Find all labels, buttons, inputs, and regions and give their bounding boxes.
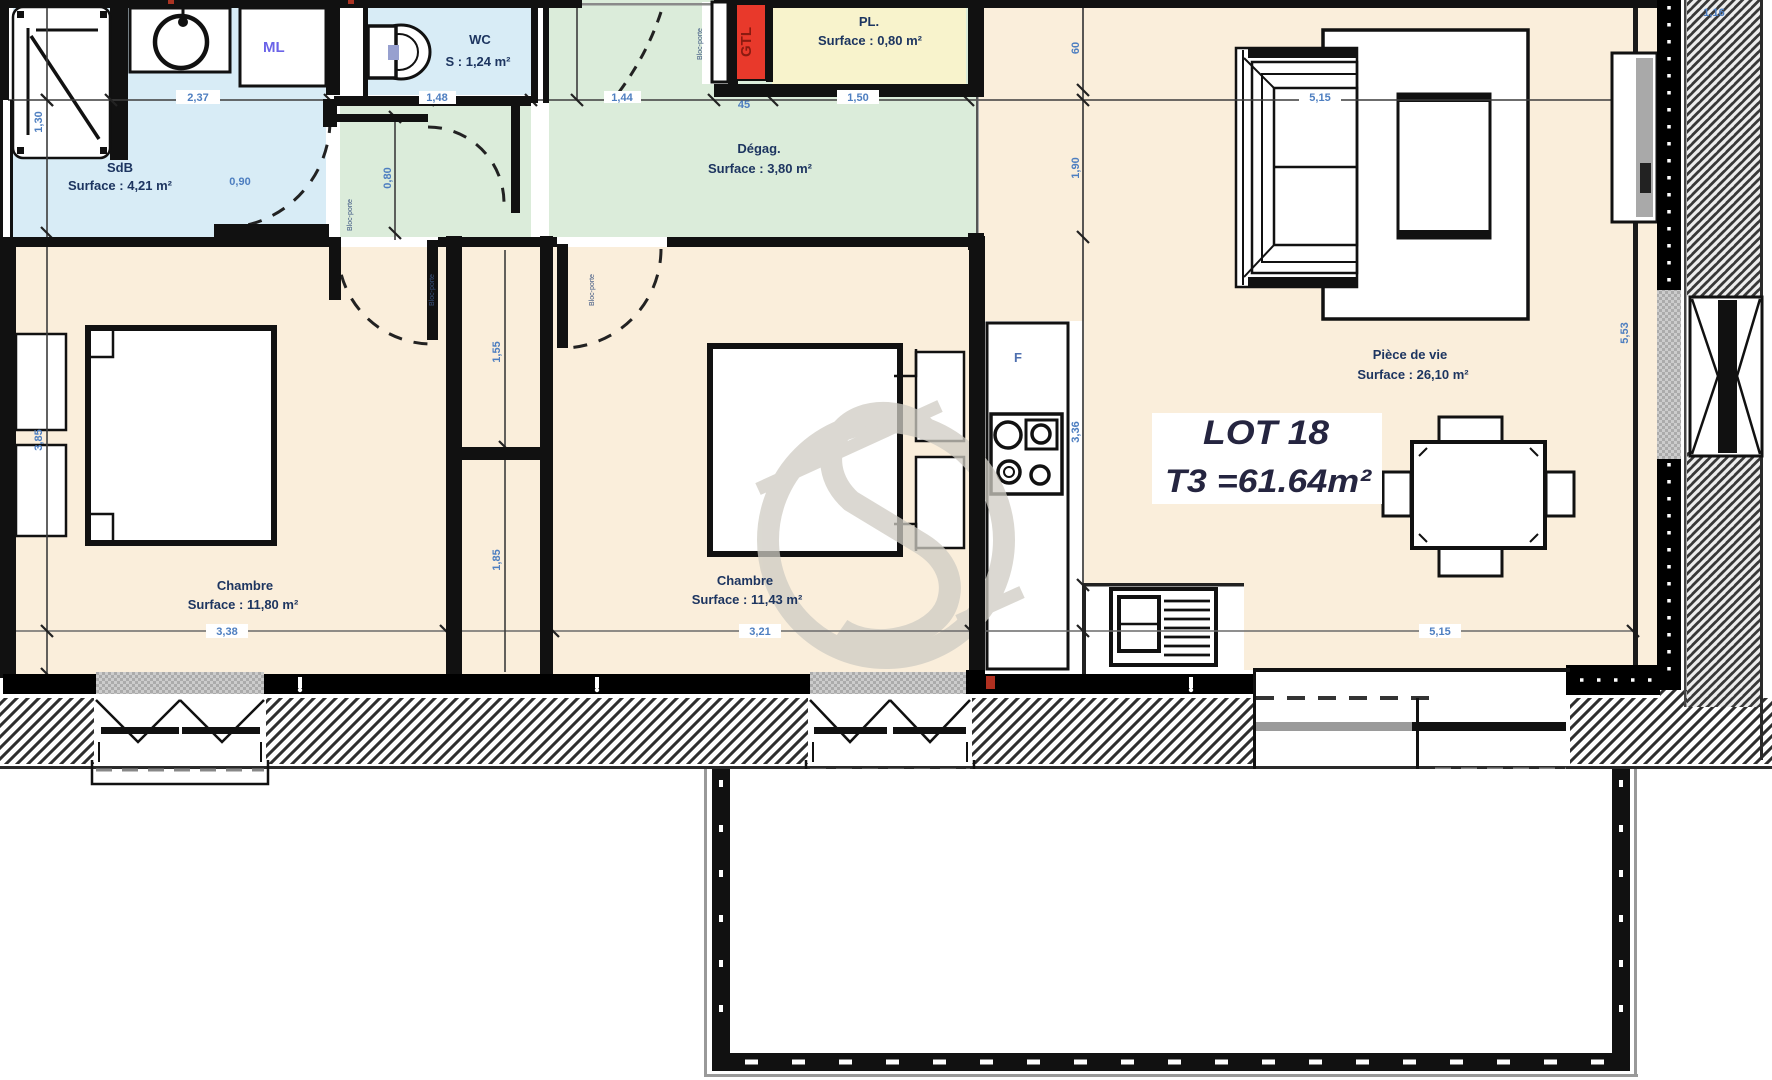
svg-text:1,55: 1,55	[491, 341, 503, 362]
svg-text:F: F	[1014, 350, 1022, 365]
svg-text:Bloc-porte: Bloc-porte	[429, 274, 436, 306]
svg-text:1,50: 1,50	[847, 92, 868, 104]
svg-text:T3 =61.64m²: T3 =61.64m²	[1165, 463, 1373, 499]
svg-text:Pièce de vie: Pièce de vie	[1373, 347, 1447, 362]
svg-text:ML: ML	[263, 39, 285, 56]
svg-text:PL.: PL.	[859, 14, 879, 29]
svg-text:Surface : 3,80 m²: Surface : 3,80 m²	[708, 161, 813, 176]
svg-text:Dégag.: Dégag.	[737, 141, 780, 156]
svg-text:WC: WC	[469, 32, 491, 47]
svg-text:45: 45	[738, 99, 750, 111]
svg-text:Surface : 11,43 m²: Surface : 11,43 m²	[692, 592, 803, 607]
svg-text:1,48: 1,48	[426, 92, 447, 104]
svg-text:2,37: 2,37	[187, 92, 208, 104]
svg-text:Chambre: Chambre	[717, 573, 773, 588]
svg-text:LOT 18: LOT 18	[1203, 414, 1329, 452]
svg-text:5,15: 5,15	[1429, 626, 1450, 638]
svg-text:Surface : 4,21 m²: Surface : 4,21 m²	[68, 178, 173, 193]
svg-text:1,44: 1,44	[611, 92, 633, 104]
svg-text:Surface : 0,80 m²: Surface : 0,80 m²	[818, 33, 923, 48]
svg-text:5,15: 5,15	[1309, 92, 1330, 104]
svg-text:Surface : 11,80 m²: Surface : 11,80 m²	[188, 597, 299, 612]
svg-text:5,53: 5,53	[1619, 322, 1631, 343]
svg-text:S : 1,24 m²: S : 1,24 m²	[445, 54, 511, 69]
svg-text:3,36: 3,36	[1070, 421, 1082, 442]
svg-text:Surface : 26,10 m²: Surface : 26,10 m²	[1357, 367, 1469, 382]
svg-text:GTL: GTL	[738, 27, 755, 57]
svg-text:3,21: 3,21	[749, 626, 770, 638]
svg-text:0,80: 0,80	[382, 167, 394, 188]
svg-text:Bloc-porte: Bloc-porte	[589, 274, 596, 306]
svg-text:1,30: 1,30	[33, 111, 45, 132]
svg-text:Chambre: Chambre	[217, 578, 273, 593]
svg-text:3,38: 3,38	[216, 626, 237, 638]
svg-text:3,85: 3,85	[33, 429, 45, 450]
svg-text:Bloc-porte: Bloc-porte	[697, 28, 704, 60]
svg-text:60: 60	[1070, 42, 1082, 54]
svg-text:0,90: 0,90	[229, 176, 250, 188]
svg-text:Bloc-porte: Bloc-porte	[347, 199, 354, 231]
svg-text:1,16: 1,16	[1703, 7, 1724, 19]
svg-text:1,85: 1,85	[491, 549, 503, 570]
svg-text:SdB: SdB	[107, 160, 133, 175]
svg-text:1,90: 1,90	[1070, 157, 1082, 178]
